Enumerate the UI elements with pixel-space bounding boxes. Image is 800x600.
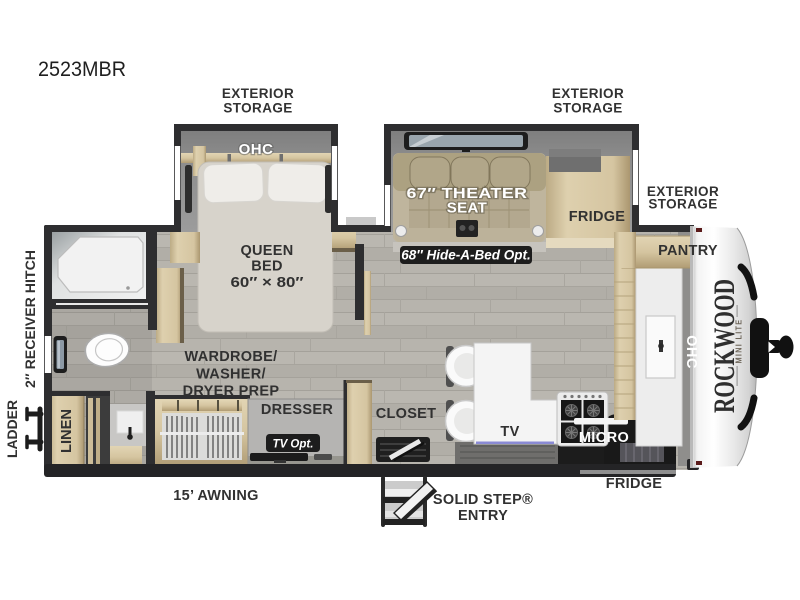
svg-text:OHC: OHC: [683, 335, 699, 369]
svg-text:TV: TV: [500, 424, 519, 440]
svg-text:ENTRY: ENTRY: [458, 508, 508, 524]
svg-text:68″ Hide-A-Bed Opt.: 68″ Hide-A-Bed Opt.: [401, 248, 530, 263]
svg-text:OHC: OHC: [239, 141, 274, 158]
svg-text:FRIDGE: FRIDGE: [606, 476, 663, 492]
svg-text:WARDROBE/: WARDROBE/: [185, 349, 278, 365]
svg-text:STORAGE: STORAGE: [553, 101, 622, 116]
svg-text:2523MBR: 2523MBR: [38, 58, 126, 81]
svg-text:60″ × 80″: 60″ × 80″: [231, 275, 304, 291]
svg-text:TV Opt.: TV Opt.: [273, 439, 314, 451]
svg-text:EXTERIOR: EXTERIOR: [222, 86, 294, 101]
svg-text:PANTRY: PANTRY: [658, 243, 718, 259]
svg-text:DRYER PREP: DRYER PREP: [183, 384, 280, 400]
svg-text:MINI LITE: MINI LITE: [734, 319, 744, 364]
svg-text:MICRO: MICRO: [579, 430, 629, 446]
svg-text:2″ RECEIVER HITCH: 2″ RECEIVER HITCH: [23, 250, 38, 388]
svg-text:SOLID STEP®: SOLID STEP®: [433, 492, 533, 508]
svg-text:FRIDGE: FRIDGE: [569, 209, 626, 225]
svg-text:BED: BED: [251, 259, 283, 275]
svg-text:EXTERIOR: EXTERIOR: [552, 86, 624, 101]
svg-text:QUEEN: QUEEN: [240, 243, 293, 259]
svg-text:STORAGE: STORAGE: [223, 101, 292, 116]
svg-text:SEAT: SEAT: [447, 200, 488, 217]
svg-text:LADDER: LADDER: [5, 400, 20, 458]
svg-text:WASHER/: WASHER/: [196, 367, 266, 383]
svg-text:DRESSER: DRESSER: [261, 402, 333, 418]
svg-text:15’ AWNING: 15’ AWNING: [173, 488, 258, 504]
svg-text:STORAGE: STORAGE: [648, 197, 717, 212]
svg-text:CLOSET: CLOSET: [376, 406, 437, 422]
svg-text:LINEN: LINEN: [59, 409, 75, 453]
